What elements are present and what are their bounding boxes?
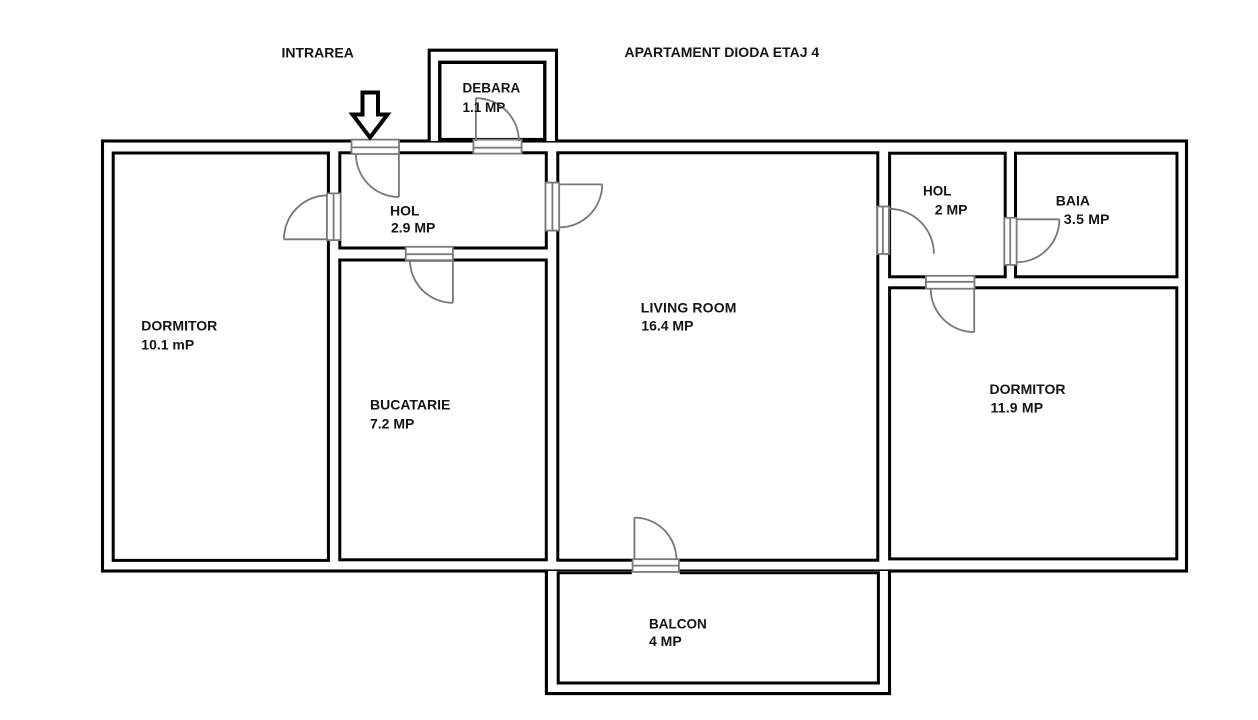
svg-text:HOL: HOL <box>390 202 420 218</box>
svg-text:2 MP: 2 MP <box>935 202 968 218</box>
svg-text:APARTAMENT DIODA ETAJ 4: APARTAMENT DIODA ETAJ 4 <box>625 44 820 60</box>
svg-text:7.2 MP: 7.2 MP <box>370 415 414 431</box>
svg-text:DEBARA: DEBARA <box>463 81 521 96</box>
svg-text:BUCATARIE: BUCATARIE <box>370 397 450 413</box>
svg-text:DORMITOR: DORMITOR <box>990 381 1066 397</box>
svg-text:1.1 MP: 1.1 MP <box>463 100 506 115</box>
svg-text:DORMITOR: DORMITOR <box>141 318 217 334</box>
svg-text:BALCON: BALCON <box>649 617 707 632</box>
svg-text:INTRAREA: INTRAREA <box>282 45 354 61</box>
svg-text:2.9 MP: 2.9 MP <box>391 220 435 236</box>
svg-text:LIVING ROOM: LIVING ROOM <box>641 300 737 316</box>
svg-text:10.1 mP: 10.1 mP <box>141 336 194 352</box>
svg-text:3.5 MP: 3.5 MP <box>1064 211 1110 227</box>
svg-text:4 MP: 4 MP <box>649 633 682 649</box>
svg-text:16.4 MP: 16.4 MP <box>641 317 693 333</box>
svg-text:HOL: HOL <box>923 184 952 199</box>
svg-text:11.9 MP: 11.9 MP <box>991 399 1044 415</box>
svg-text:BAIA: BAIA <box>1056 193 1090 209</box>
